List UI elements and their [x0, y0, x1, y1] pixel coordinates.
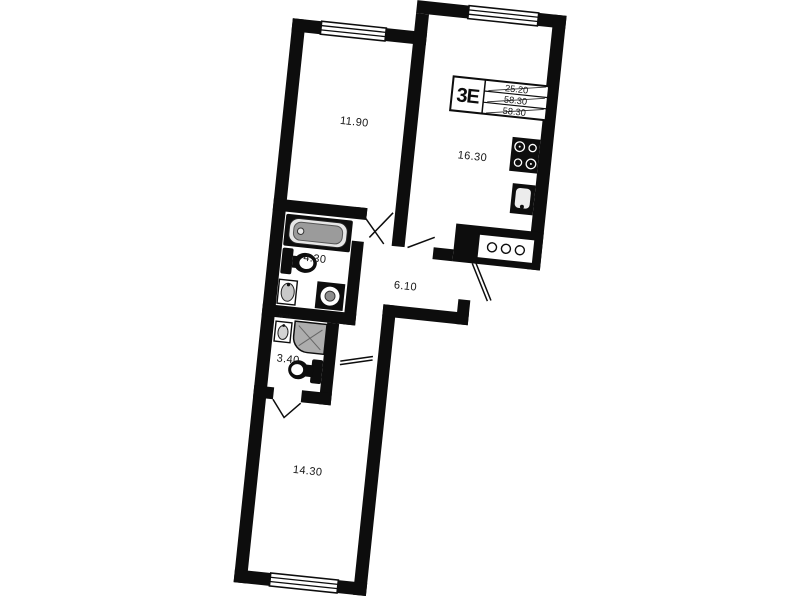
- door-leaf-kitchen: [408, 235, 435, 251]
- wall-bathroom-right-a: [355, 207, 368, 216]
- room-label-kitchen: 16.30: [457, 149, 488, 164]
- room-label-bedroom: 14.30: [292, 464, 323, 479]
- wall-hall-right: [456, 299, 471, 325]
- floor-plan-page: 3Е 25.20 58.30 58.30 11.90 16.30 4.30 6.…: [0, 0, 799, 600]
- outer-wall-bedroom-right: [353, 304, 396, 596]
- entrance-door-leaf-b: [472, 263, 495, 301]
- washbasin-icon-bathroom: [277, 279, 297, 305]
- room-label-bathroom: 4.30: [303, 252, 327, 266]
- bathtub-icon: [283, 214, 353, 253]
- window-bedroom-icon: [269, 573, 338, 593]
- floor-plan-drawing: 3Е 25.20 58.30 58.30 11.90 16.30 4.30 6.…: [0, 0, 799, 600]
- kitchen-sink-icon: [510, 183, 536, 215]
- apartment-plan: 3Е 25.20 58.30 58.30 11.90 16.30 4.30 6.…: [234, 0, 567, 600]
- wall-kitchen-door-stub: [432, 247, 453, 261]
- outer-wall-bottom-a: [234, 569, 271, 586]
- washer-spot-label: ВСМ: [278, 313, 291, 320]
- shower-icon: [292, 321, 327, 354]
- washbasin-icon-wc: [274, 321, 292, 343]
- door-leaf-bathroom: [363, 218, 386, 244]
- vent-shaft-icon: [477, 234, 535, 264]
- window-living-icon: [320, 21, 386, 41]
- window-kitchen-icon: [468, 6, 539, 26]
- room-label-living: 11.90: [339, 115, 369, 130]
- wall-living-kitchen: [392, 13, 429, 247]
- door-leaf-wc: [271, 399, 301, 419]
- unit-type-label: 3Е: [455, 84, 480, 108]
- stove-icon: [509, 137, 540, 174]
- wall-hall-bottom: [382, 304, 469, 325]
- entrance-door-leaf-a: [468, 263, 491, 301]
- wall-wc-bottom-a: [253, 385, 274, 399]
- unit-info-box: 3Е 25.20 58.30 58.30: [450, 76, 549, 120]
- room-label-wc: 3.40: [276, 352, 300, 366]
- washing-machine-icon: [315, 281, 346, 311]
- room-label-hallway: 6.10: [393, 279, 417, 293]
- door-leaf-living: [369, 211, 393, 240]
